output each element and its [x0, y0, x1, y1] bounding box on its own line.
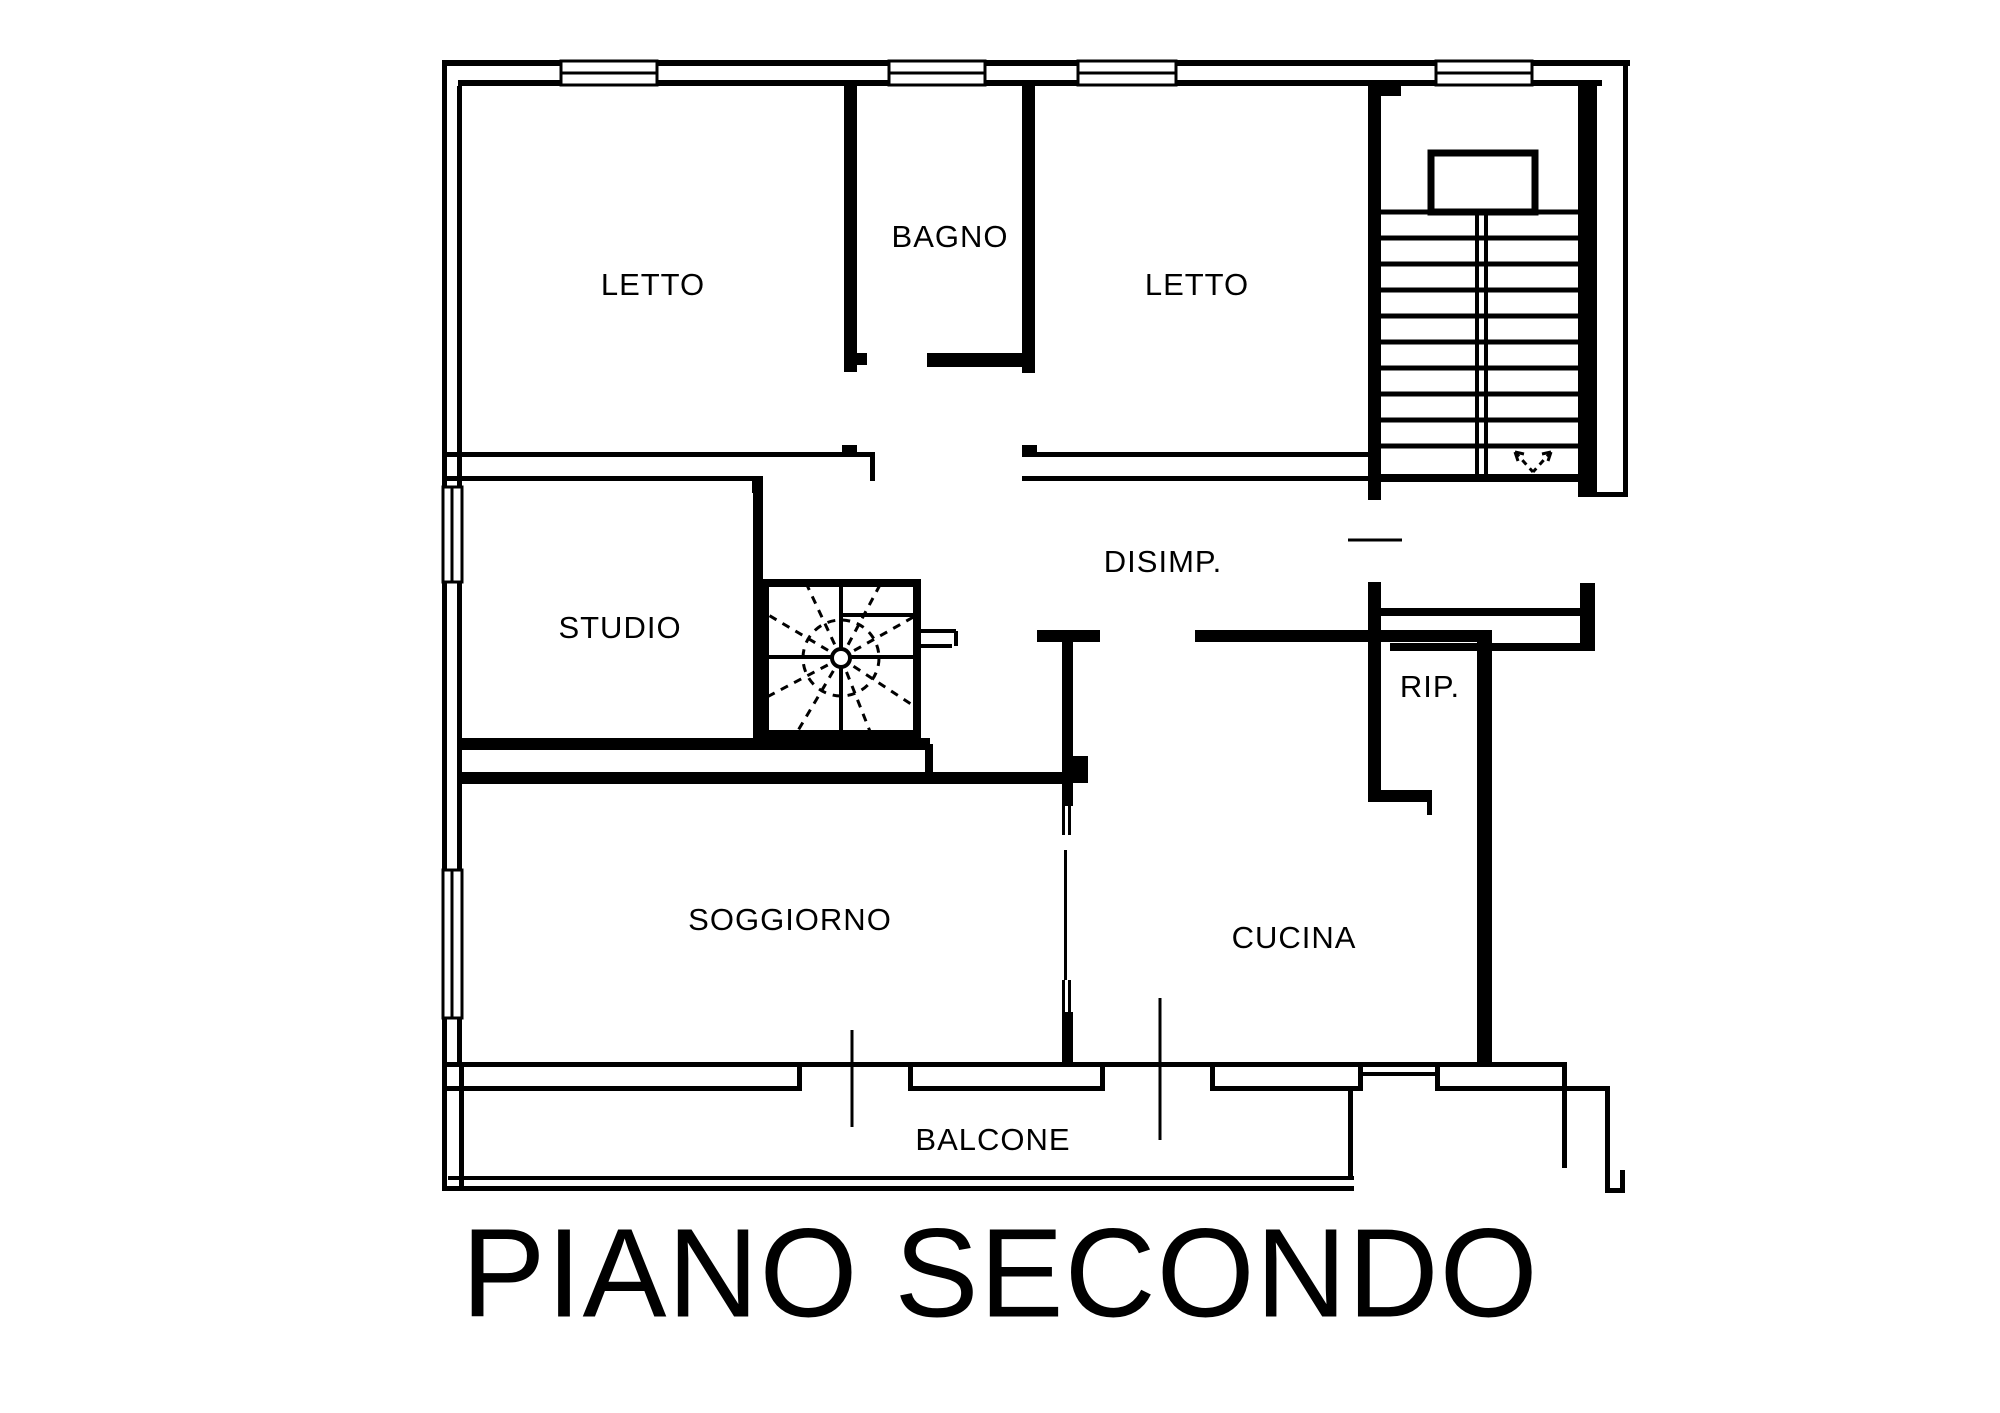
- room-label-letto-1: LETTO: [601, 267, 705, 303]
- room-label-soggiorno: SOGGIORNO: [688, 902, 892, 938]
- interior-walls: [442, 86, 1597, 1065]
- floor-title: PIANO SECONDO: [461, 1201, 1538, 1346]
- stair-treads: [1381, 212, 1578, 446]
- room-label-ripostiglio: RIP.: [1400, 669, 1460, 705]
- room-label-cucina: CUCINA: [1232, 920, 1357, 956]
- room-label-bagno: BAGNO: [892, 219, 1009, 255]
- room-label-studio: STUDIO: [558, 610, 681, 646]
- spiral-staircase-icon: [765, 583, 956, 734]
- stair-arrow-barbs: [1515, 452, 1551, 461]
- stairwell: [1381, 153, 1578, 472]
- room-label-letto-2: LETTO: [1145, 267, 1249, 303]
- room-label-balcone: BALCONE: [915, 1122, 1070, 1158]
- floorplan-page: LETTO BAGNO LETTO STUDIO DISIMP. RIP. SO…: [0, 0, 2000, 1413]
- stair-down-arrow-icon: [1515, 452, 1551, 472]
- room-label-disimpegno: DISIMP.: [1104, 544, 1222, 580]
- stair-landing-box: [1431, 153, 1535, 212]
